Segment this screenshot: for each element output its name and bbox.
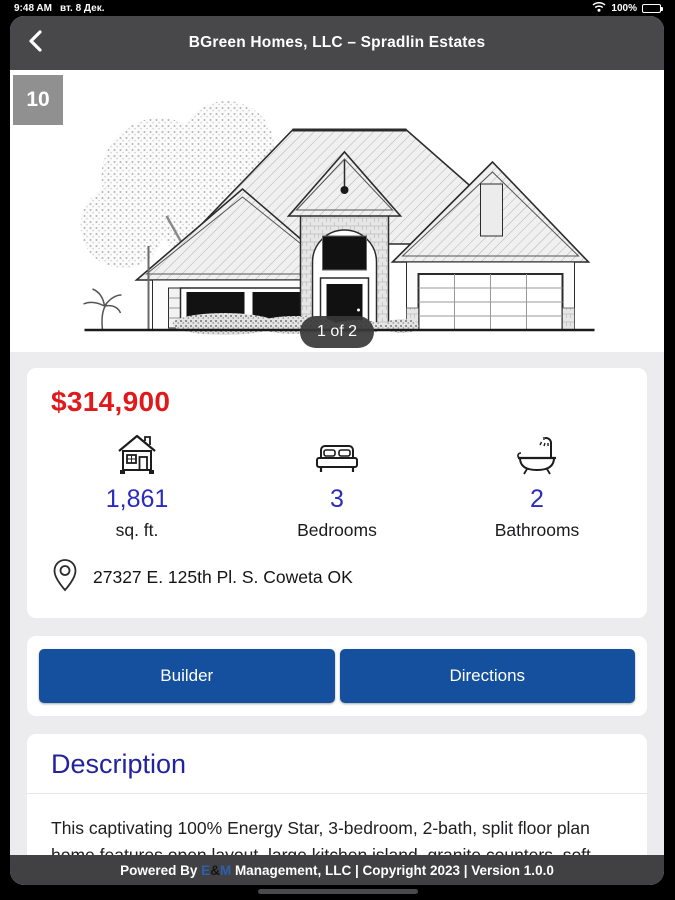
bedrooms-value: 3 (237, 485, 437, 514)
location-pin-icon (51, 557, 79, 598)
address-row: 27327 E. 125th Pl. S. Coweta OK (27, 541, 647, 618)
stat-sqft: 1,861 sq. ft. (37, 430, 237, 541)
lot-number-badge: 10 (13, 75, 63, 125)
status-time: 9:48 AM (14, 3, 52, 14)
chevron-left-icon (26, 29, 43, 58)
nav-bar: BGreen Homes, LLC – Spradlin Estates (10, 16, 664, 70)
footer-suffix: Management, LLC | Copyright 2023 | Versi… (231, 863, 554, 878)
listing-content: $314,900 (10, 352, 664, 885)
screen: 9:48 AM вт. 8 Дек. 100% BGreen Homes, LL… (0, 0, 675, 900)
directions-button[interactable]: Directions (340, 649, 636, 703)
stat-bathrooms: 2 Bathrooms (437, 430, 637, 541)
sqft-label: sq. ft. (37, 520, 237, 541)
house-elevation-illustration (65, 94, 610, 351)
status-bar: 9:48 AM вт. 8 Дек. 100% (0, 0, 675, 16)
home-indicator[interactable] (258, 889, 418, 894)
app-window: BGreen Homes, LLC – Spradlin Estates 10 (10, 16, 664, 885)
photo-pager: 1 of 2 (300, 316, 374, 348)
stats-row: 1,861 sq. ft. (27, 422, 647, 541)
price: $314,900 (27, 368, 647, 422)
stat-bedrooms: 3 Bedrooms (237, 430, 437, 541)
page-title: BGreen Homes, LLC – Spradlin Estates (189, 34, 486, 52)
bed-icon (237, 430, 437, 476)
house-icon (37, 430, 237, 476)
photo-carousel[interactable]: 10 (10, 70, 664, 352)
status-date: вт. 8 Дек. (60, 3, 105, 14)
app-footer: Powered By E&M Management, LLC | Copyrig… (10, 855, 664, 885)
back-button[interactable] (26, 16, 43, 70)
footer-brand-amp: & (210, 863, 220, 878)
address: 27327 E. 125th Pl. S. Coweta OK (93, 567, 353, 588)
bathrooms-label: Bathrooms (437, 520, 637, 541)
footer-prefix: Powered By (120, 863, 201, 878)
footer-brand-e: E (201, 863, 210, 878)
builder-button[interactable]: Builder (39, 649, 335, 703)
actions-card: Builder Directions (27, 636, 647, 716)
bath-icon (437, 430, 637, 476)
wifi-icon (592, 1, 606, 15)
listing-summary-card: $314,900 (27, 368, 647, 618)
bathrooms-value: 2 (437, 485, 637, 514)
battery-percent: 100% (611, 3, 637, 14)
bedrooms-label: Bedrooms (237, 520, 437, 541)
footer-brand-m: M (220, 863, 231, 878)
sqft-value: 1,861 (37, 485, 237, 514)
description-heading: Description (27, 734, 647, 793)
battery-icon (642, 4, 661, 13)
